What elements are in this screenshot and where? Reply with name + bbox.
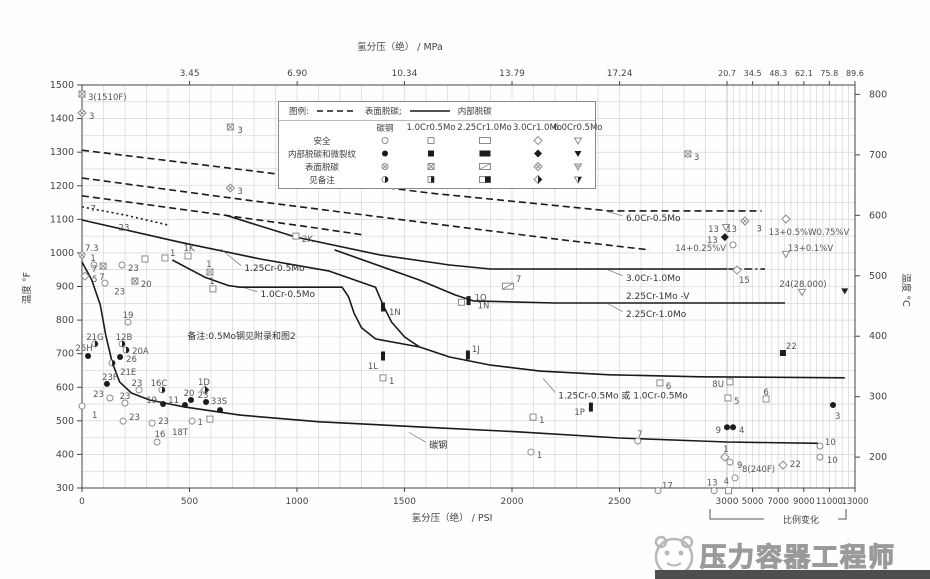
svg-text:200: 200 bbox=[869, 452, 887, 463]
svg-text:1L: 1L bbox=[368, 362, 378, 372]
svg-text:900: 900 bbox=[56, 282, 74, 293]
legend-symbol-内部脱碳和微裂纹-1.0Cr0.5Mo bbox=[405, 147, 457, 160]
svg-text:23: 23 bbox=[128, 264, 139, 274]
svg-text:800: 800 bbox=[56, 315, 74, 326]
svg-text:19: 19 bbox=[123, 311, 134, 321]
legend-symbol-内部脱碳和微裂纹-2.25Cr1.0Mo bbox=[457, 147, 512, 160]
watermark-bar bbox=[655, 570, 930, 579]
svg-text:11000: 11000 bbox=[816, 497, 843, 507]
svg-text:1: 1 bbox=[723, 445, 728, 455]
legend-symbol-表面脱碳-碳钢 bbox=[365, 160, 405, 173]
legend-symbol-见备注-3.0Cr1.0Mo bbox=[512, 173, 563, 186]
svg-text:1D: 1D bbox=[198, 378, 210, 388]
svg-text:3.45: 3.45 bbox=[180, 69, 200, 79]
svg-text:62.1: 62.1 bbox=[795, 69, 813, 78]
legend-symbol-内部脱碳和微裂纹-碳钢 bbox=[365, 147, 405, 160]
svg-text:23F: 23F bbox=[102, 373, 118, 383]
svg-text:7: 7 bbox=[92, 265, 97, 275]
svg-text:24(28.000): 24(28.000) bbox=[779, 280, 826, 290]
svg-text:14+0.25%V: 14+0.25%V bbox=[675, 244, 726, 254]
svg-text:15: 15 bbox=[739, 276, 750, 286]
svg-text:比例变化: 比例变化 bbox=[783, 514, 819, 526]
svg-text:1500: 1500 bbox=[50, 80, 74, 91]
svg-text:4: 4 bbox=[739, 426, 744, 436]
svg-text:1: 1 bbox=[90, 254, 95, 264]
svg-text:13000: 13000 bbox=[841, 497, 868, 507]
svg-text:1J: 1J bbox=[472, 345, 480, 355]
svg-text:3: 3 bbox=[835, 412, 840, 422]
svg-text:3.0Cr-1.0Mo: 3.0Cr-1.0Mo bbox=[626, 274, 681, 284]
svg-text:25H: 25H bbox=[75, 344, 92, 354]
svg-text:300: 300 bbox=[869, 392, 887, 403]
legend-symbol-内部脱碳和微裂纹-6.0Cr0.5Mo bbox=[563, 147, 593, 160]
svg-text:48.3: 48.3 bbox=[769, 69, 787, 78]
svg-text:9: 9 bbox=[716, 426, 721, 436]
svg-text:2000: 2000 bbox=[501, 497, 524, 507]
svg-text:17.24: 17.24 bbox=[607, 69, 633, 79]
svg-text:2500: 2500 bbox=[608, 497, 631, 507]
svg-text:75.8: 75.8 bbox=[820, 69, 838, 78]
svg-text:18T: 18T bbox=[172, 428, 189, 438]
svg-text:1100: 1100 bbox=[50, 214, 74, 225]
svg-text:1.0Cr-0.5Mo: 1.0Cr-0.5Mo bbox=[260, 290, 315, 300]
svg-text:10.34: 10.34 bbox=[392, 69, 418, 79]
svg-text:1400: 1400 bbox=[50, 114, 74, 125]
svg-text:备注:0.5Mo钢见附录和图2: 备注:0.5Mo钢见附录和图2 bbox=[187, 330, 295, 342]
legend-symbol-表面脱碳-3.0Cr1.0Mo bbox=[512, 160, 563, 173]
svg-text:1.25Cr-0.5Mo 或 1.0Cr-0.5Mo: 1.25Cr-0.5Mo 或 1.0Cr-0.5Mo bbox=[558, 390, 688, 402]
nelson-curve-chart: 0500100015002000250030005000700090001100… bbox=[0, 0, 930, 579]
svg-text:5: 5 bbox=[734, 397, 739, 407]
legend-symbol-见备注-2.25Cr1.0Mo bbox=[457, 173, 512, 186]
svg-text:1: 1 bbox=[92, 411, 97, 421]
svg-text:500: 500 bbox=[869, 271, 887, 282]
svg-text:1: 1 bbox=[539, 416, 544, 426]
svg-text:6: 6 bbox=[666, 382, 671, 392]
svg-text:23: 23 bbox=[198, 391, 209, 401]
svg-text:21E: 21E bbox=[120, 368, 136, 378]
svg-text:8(240F): 8(240F) bbox=[742, 465, 775, 475]
svg-text:26: 26 bbox=[126, 355, 137, 365]
svg-text:3(1510F): 3(1510F) bbox=[88, 93, 127, 103]
svg-text:2.25Cr-1.0Mo: 2.25Cr-1.0Mo bbox=[626, 310, 687, 320]
svg-text:0: 0 bbox=[79, 497, 85, 507]
svg-text:600: 600 bbox=[869, 210, 887, 221]
svg-text:23: 23 bbox=[93, 390, 104, 400]
svg-text:10: 10 bbox=[825, 438, 836, 448]
svg-text:89.6: 89.6 bbox=[846, 69, 864, 78]
svg-text:1: 1 bbox=[198, 418, 203, 428]
svg-text:34.5: 34.5 bbox=[744, 69, 762, 78]
svg-text:1300: 1300 bbox=[50, 147, 74, 158]
svg-text:23: 23 bbox=[120, 392, 131, 402]
legend-symbol-安全-3.0Cr1.0Mo bbox=[512, 134, 563, 147]
legend-grid: 碳钢1.0Cr0.5Mo2.25Cr1.0Mo3.0Cr1.0Mo6.0Cr0.… bbox=[279, 121, 595, 186]
svg-text:23: 23 bbox=[129, 413, 140, 423]
svg-text:3: 3 bbox=[756, 225, 761, 235]
svg-text:6: 6 bbox=[763, 388, 768, 398]
svg-text:9000: 9000 bbox=[793, 497, 815, 507]
svg-text:23: 23 bbox=[132, 379, 143, 389]
legend-symbol-安全-6.0Cr0.5Mo bbox=[563, 134, 593, 147]
svg-text:13: 13 bbox=[708, 225, 719, 235]
svg-text:8U: 8U bbox=[712, 380, 724, 390]
svg-text:400: 400 bbox=[869, 331, 887, 342]
svg-text:7.3: 7.3 bbox=[85, 244, 99, 254]
legend-symbol-安全-1.0Cr0.5Mo bbox=[405, 134, 457, 147]
svg-text:7: 7 bbox=[637, 430, 642, 440]
legend-row-label-2: 表面脱碳 bbox=[279, 160, 365, 173]
svg-text:13: 13 bbox=[707, 479, 718, 489]
svg-text:6.0Cr-0.5Mo: 6.0Cr-0.5Mo bbox=[626, 214, 681, 224]
svg-text:19: 19 bbox=[146, 396, 157, 406]
svg-text:500: 500 bbox=[56, 416, 74, 427]
svg-text:1N: 1N bbox=[389, 308, 401, 318]
svg-text:3: 3 bbox=[89, 112, 94, 122]
svg-text:3000: 3000 bbox=[716, 497, 739, 507]
svg-text:温度 °F: 温度 °F bbox=[21, 272, 33, 304]
legend: 图例:表面脱碳;内部脱碳碳钢1.0Cr0.5Mo2.25Cr1.0Mo3.0Cr… bbox=[278, 101, 596, 189]
svg-text:800: 800 bbox=[869, 89, 887, 100]
svg-text:22: 22 bbox=[786, 342, 797, 352]
svg-text:700: 700 bbox=[869, 150, 887, 161]
legend-symbol-表面脱碳-2.25Cr1.0Mo bbox=[457, 160, 512, 173]
legend-column-0: 碳钢 bbox=[365, 121, 405, 134]
svg-text:3: 3 bbox=[694, 153, 699, 163]
svg-text:7000: 7000 bbox=[767, 497, 789, 507]
svg-text:1.25Cr-0.5Mo: 1.25Cr-0.5Mo bbox=[244, 264, 305, 274]
svg-text:13+0.5%W0.75%V: 13+0.5%W0.75%V bbox=[769, 228, 850, 238]
svg-text:1K: 1K bbox=[184, 244, 195, 254]
svg-text:5: 5 bbox=[92, 275, 97, 285]
legend-symbol-内部脱碳和微裂纹-3.0Cr1.0Mo bbox=[512, 147, 563, 160]
legend-row-label-3: 见备注 bbox=[279, 173, 365, 186]
svg-text:22: 22 bbox=[790, 460, 801, 470]
svg-text:2.25Cr-1Mo -V: 2.25Cr-1Mo -V bbox=[626, 292, 690, 302]
svg-text:1200: 1200 bbox=[50, 181, 74, 192]
svg-text:3: 3 bbox=[237, 187, 242, 197]
svg-text:1: 1 bbox=[537, 451, 542, 461]
svg-text:1500: 1500 bbox=[393, 497, 416, 507]
svg-text:21G: 21G bbox=[86, 333, 103, 343]
svg-text:17: 17 bbox=[662, 482, 673, 492]
svg-text:20: 20 bbox=[141, 280, 152, 290]
svg-text:13: 13 bbox=[726, 225, 737, 235]
svg-text:1N: 1N bbox=[478, 302, 490, 312]
svg-text:16C: 16C bbox=[151, 379, 168, 389]
legend-symbol-表面脱碳-6.0Cr0.5Mo bbox=[563, 160, 593, 173]
svg-text:1: 1 bbox=[170, 249, 175, 259]
legend-symbol-安全-碳钢 bbox=[365, 134, 405, 147]
chart-canvas: 0500100015002000250030005000700090001100… bbox=[0, 0, 930, 579]
legend-column-4: 6.0Cr0.5Mo bbox=[563, 121, 593, 134]
svg-text:7: 7 bbox=[91, 204, 96, 214]
svg-text:1000: 1000 bbox=[50, 248, 74, 259]
legend-symbol-安全-2.25Cr1.0Mo bbox=[457, 134, 512, 147]
svg-text:23: 23 bbox=[114, 288, 125, 298]
svg-text:500: 500 bbox=[181, 497, 198, 507]
curve- bbox=[82, 262, 818, 443]
svg-text:4: 4 bbox=[724, 477, 729, 487]
watermark-text: 压力容器工程师 bbox=[700, 537, 896, 574]
svg-text:20: 20 bbox=[184, 389, 195, 399]
legend-title: 图例: bbox=[289, 105, 309, 117]
svg-text:1P: 1P bbox=[574, 408, 585, 418]
svg-text:1: 1 bbox=[206, 260, 211, 270]
legend-symbol-见备注-碳钢 bbox=[365, 173, 405, 186]
legend-symbol-见备注-6.0Cr0.5Mo bbox=[563, 173, 593, 186]
legend-dashed-label: 表面脱碳; bbox=[365, 105, 402, 117]
svg-text:700: 700 bbox=[56, 349, 74, 360]
svg-text:33S: 33S bbox=[211, 397, 227, 407]
svg-text:5000: 5000 bbox=[742, 497, 764, 507]
svg-text:氢分压（绝） / MPa: 氢分压（绝） / MPa bbox=[357, 41, 443, 53]
svg-text:10: 10 bbox=[827, 456, 838, 466]
svg-text:1: 1 bbox=[209, 277, 214, 287]
svg-text:1000: 1000 bbox=[286, 497, 309, 507]
legend-row-label-0: 安全 bbox=[279, 134, 365, 147]
svg-text:氢分压（绝） / PSI: 氢分压（绝） / PSI bbox=[412, 512, 493, 524]
svg-text:400: 400 bbox=[56, 449, 74, 460]
svg-text:温度 °C: 温度 °C bbox=[900, 273, 912, 307]
legend-header: 图例:表面脱碳;内部脱碳 bbox=[279, 102, 595, 121]
legend-column-1: 1.0Cr0.5Mo bbox=[405, 121, 457, 134]
svg-text:300: 300 bbox=[56, 483, 74, 494]
legend-symbol-表面脱碳-1.0Cr0.5Mo bbox=[405, 160, 457, 173]
svg-text:13.79: 13.79 bbox=[499, 69, 525, 79]
svg-text:600: 600 bbox=[56, 382, 74, 393]
svg-text:碳钢: 碳钢 bbox=[429, 439, 447, 451]
legend-row-label-1: 内部脱碳和微裂纹 bbox=[279, 147, 365, 160]
svg-text:2K: 2K bbox=[302, 235, 313, 245]
svg-text:7: 7 bbox=[516, 275, 521, 285]
legend-symbol-见备注-1.0Cr0.5Mo bbox=[405, 173, 457, 186]
svg-text:20.7: 20.7 bbox=[718, 69, 736, 78]
legend-solid-label: 内部脱碳 bbox=[458, 105, 492, 117]
svg-text:13+0.1%V: 13+0.1%V bbox=[788, 244, 834, 254]
svg-text:23: 23 bbox=[119, 224, 130, 234]
legend-column-2: 2.25Cr1.0Mo bbox=[457, 121, 512, 134]
svg-text:6.90: 6.90 bbox=[287, 69, 307, 79]
svg-text:16: 16 bbox=[155, 430, 166, 440]
svg-text:1: 1 bbox=[389, 377, 394, 387]
svg-text:12B: 12B bbox=[116, 333, 133, 343]
svg-text:11: 11 bbox=[168, 396, 179, 406]
svg-text:7: 7 bbox=[99, 273, 104, 283]
svg-text:3: 3 bbox=[237, 126, 242, 136]
svg-text:23: 23 bbox=[158, 417, 169, 427]
